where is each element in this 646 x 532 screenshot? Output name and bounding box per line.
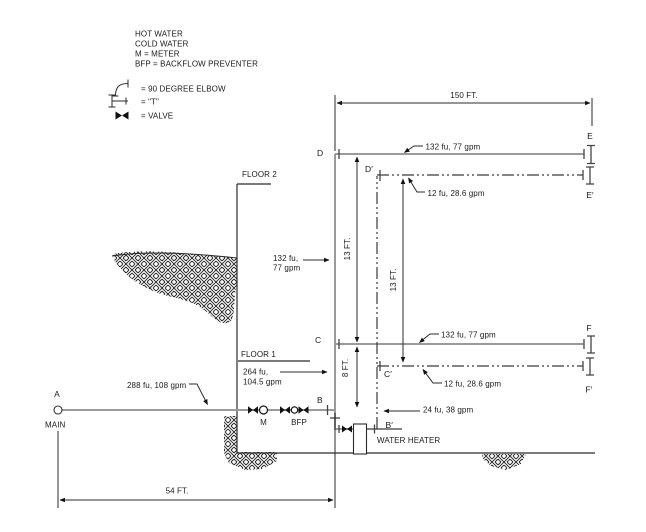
tee-icon [109,95,129,107]
dimensions [58,95,592,508]
main-label: MAIN [45,421,66,430]
tee-fitting-e-prime [583,167,594,184]
valve-icon-3 [299,406,309,414]
leader-service [189,384,208,405]
meter-label: M [260,418,267,427]
hot-water-pipes [367,175,584,429]
flow-floor1-hot-label: 12 fu, 28.6 gpm [444,380,501,389]
tee-fitting-f-prime [583,358,594,375]
leader-floor1-cold [420,334,440,343]
tee-fitting-f [584,336,595,353]
dim-54ft-label: 54 FT. [166,487,189,496]
bfp-body-icon [291,407,297,413]
dim-13ft-cold-label: 13 FT. [343,238,352,261]
main-node-icon [54,406,62,414]
node-c-prime: C′ [384,369,392,379]
valve-icon-2 [280,406,290,414]
tee-fitting-e [584,146,595,164]
water-heater-feed-pipe [335,410,354,429]
elbow-icon [113,80,129,97]
earth-hatch-footing [224,416,277,470]
legend: HOT WATER COLD WATER M = METER BFP = BAC… [109,30,259,121]
floor1-label: FLOOR 1 [241,350,276,359]
node-d-prime: D′ [365,164,373,174]
flow-water-heater-branch-label: 24 fu, 38 gpm [423,406,473,415]
leader-floor1-hot [423,370,442,384]
dim-13ft-hot-label: 13 FT. [389,269,398,292]
earth-hatch [112,251,526,470]
legend-tee-label: = "T" [141,98,159,107]
legend-elbow-label: = 90 DEGREE ELBOW [141,85,226,94]
dim-8ft-label: 8 FT. [341,359,350,377]
node-b-prime: B′ [386,420,394,430]
node-e-prime: E′ [586,190,594,200]
flow-service-label: 288 fu, 108 gpm [127,381,187,390]
legend-hot-water: HOT WATER [135,30,183,39]
valve-icon-1 [248,406,258,414]
node-d: D [317,148,323,158]
node-f: F [586,323,591,333]
node-f-prime: F′ [586,385,593,395]
floor2-label: FLOOR 2 [242,170,277,179]
meter-icon [260,406,268,414]
flow-floor2-cold-label: 132 fu, 77 gpm [426,143,481,152]
flow-riser-lower-label-1: 264 fu, [243,368,268,377]
flow-floor1-cold-label: 132 fu, 77 gpm [441,331,496,340]
earth-hatch-grade [113,251,237,323]
bfp-label: BFP [291,418,307,427]
node-c: C [315,335,321,345]
node-a: A [54,389,60,399]
building [237,184,595,453]
dim-150ft-label: 150 FT. [450,91,477,100]
valve-icon [116,112,129,120]
flow-riser-lower-label-2: 104.5 gpm [243,378,282,387]
water-heater-tank [354,424,367,454]
diagram-canvas: HOT WATER COLD WATER M = METER BFP = BAC… [0,0,646,532]
flow-riser-upper-label-1: 132 fu, [273,254,298,263]
legend-bfp: BFP = BACKFLOW PREVENTER [135,60,258,69]
water-heater-label: WATER HEATER [377,436,440,445]
earth-hatch-right [482,454,526,470]
node-b: B [317,395,323,405]
flow-riser-upper-label-2: 77 gpm [273,264,301,273]
leader-floor2-hot [409,178,426,192]
water-heater-valve-icon [342,426,352,433]
legend-cold-water: COLD WATER [135,40,189,49]
node-e: E [587,131,593,141]
water-heater [342,424,367,454]
legend-meter: M = METER [135,50,180,59]
legend-valve-label: = VALVE [141,112,173,121]
plumbing-riser-diagram: HOT WATER COLD WATER M = METER BFP = BAC… [0,0,646,532]
leader-floor2-cold [405,146,424,153]
flow-floor2-hot-label: 12 fu, 28.6 gpm [428,189,485,198]
